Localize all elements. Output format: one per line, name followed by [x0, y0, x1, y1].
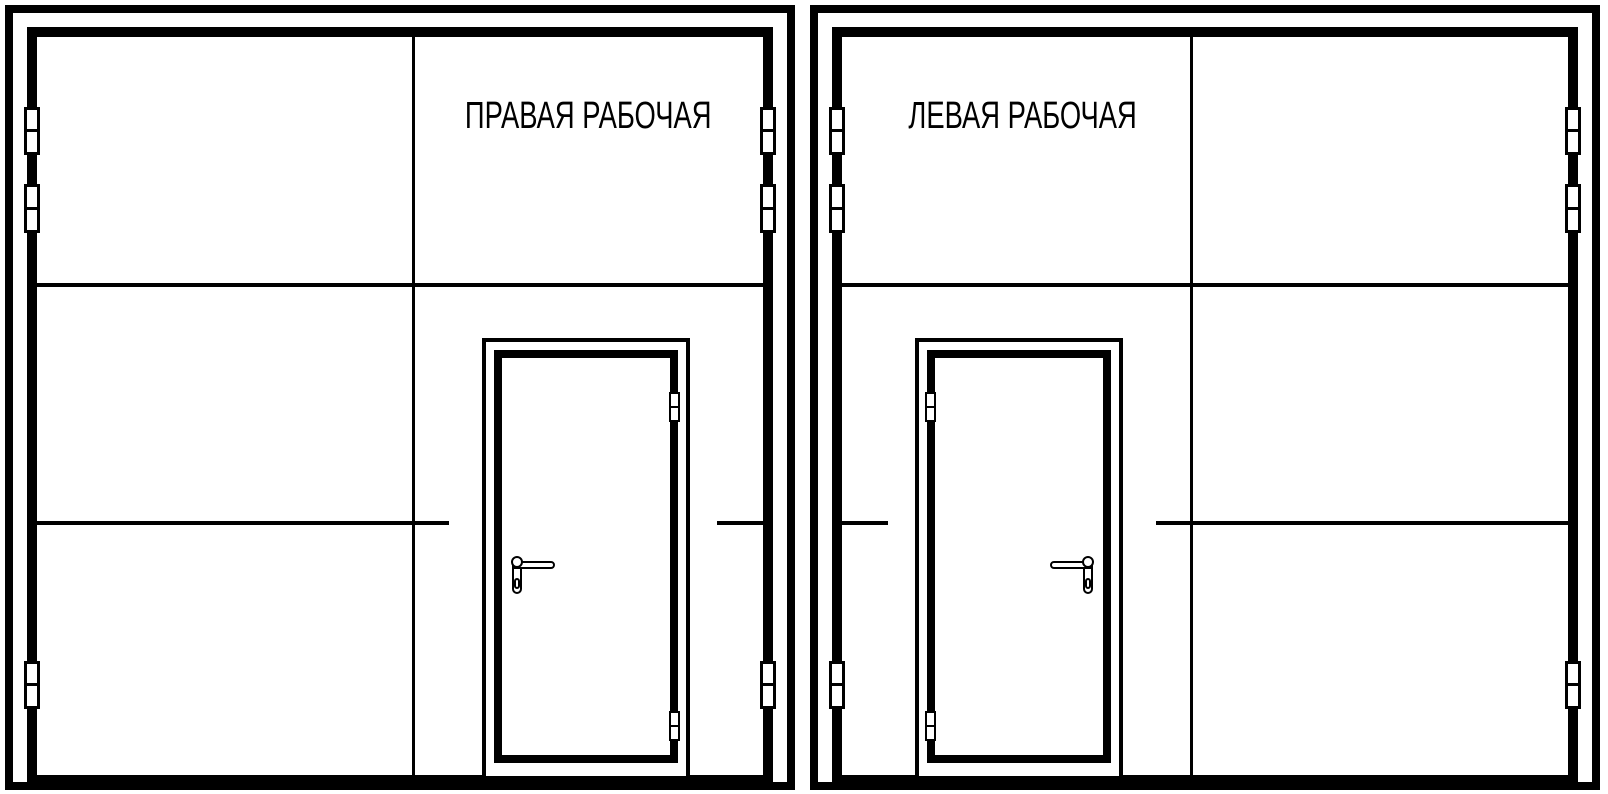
gate-hinge-icon [1565, 184, 1581, 233]
upper-panel-seam [37, 283, 763, 287]
gate-hinge-icon [1565, 661, 1581, 709]
mid-panel-seam-left [37, 521, 449, 525]
wicket-hinge-icon [669, 392, 680, 422]
wicket-door-leaf [494, 350, 678, 763]
upper-panel-seam [842, 283, 1568, 287]
gate-hinge-icon [760, 184, 776, 233]
panel-label-text: ПРАВАЯ РАБОЧАЯ [465, 97, 712, 135]
gate-hinge-icon [1565, 107, 1581, 155]
panel-label-text: ЛЕВАЯ РАБОЧАЯ [909, 97, 1137, 135]
gate-hinge-icon [760, 661, 776, 709]
gate-hinge-icon [829, 184, 845, 233]
mid-panel-seam-left [842, 521, 888, 525]
keyhole-icon [1085, 578, 1091, 589]
wicket-hinge-icon [669, 711, 680, 741]
gate-hinge-icon [24, 184, 40, 233]
leaf-meeting-line [412, 37, 415, 775]
gate-drawings: ПРАВАЯ РАБОЧАЯ ЛЕВАЯ [0, 0, 1608, 794]
panel-label: ПРАВАЯ РАБОЧАЯ [403, 97, 773, 135]
handle-pivot [511, 556, 523, 568]
wicket-hinge-icon [925, 392, 936, 422]
mid-panel-seam-right [717, 521, 763, 525]
leaf-meeting-line [1190, 37, 1193, 775]
gate-hinge-icon [24, 661, 40, 709]
mid-panel-seam-right [1156, 521, 1568, 525]
gate-hinge-icon [829, 661, 845, 709]
keyhole-icon [514, 578, 520, 589]
handle-pivot [1082, 556, 1094, 568]
panel-label: ЛЕВАЯ РАБОЧАЯ [838, 97, 1208, 135]
gate-hinge-icon [24, 107, 40, 155]
gate-panel-right-working: ПРАВАЯ РАБОЧАЯ [5, 5, 795, 790]
gate-panel-left-working: ЛЕВАЯ РАБОЧАЯ [810, 5, 1600, 790]
wicket-hinge-icon [925, 711, 936, 741]
